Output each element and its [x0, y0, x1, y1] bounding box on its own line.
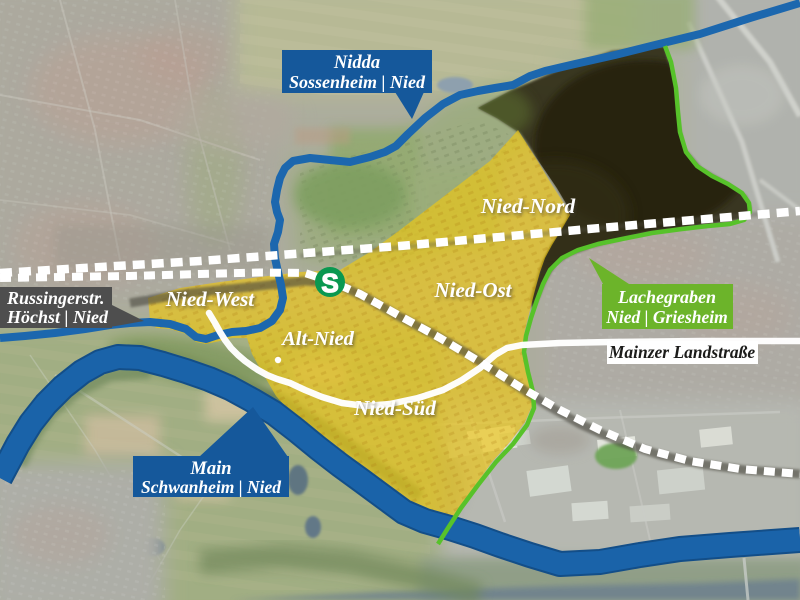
- svg-text:Alt-Nied: Alt-Nied: [280, 328, 354, 350]
- svg-text:Lachegraben: Lachegraben: [617, 287, 716, 307]
- svg-text:Nied-Nord: Nied-Nord: [480, 194, 577, 218]
- svg-text:Nied-Ost: Nied-Ost: [434, 278, 513, 302]
- svg-text:Mainzer Landstraße: Mainzer Landstraße: [608, 342, 756, 362]
- svg-text:Nied-Süd: Nied-Süd: [353, 396, 436, 420]
- svg-text:S: S: [321, 268, 338, 298]
- svg-text:Main: Main: [189, 459, 231, 479]
- svg-text:Höchst | Nied: Höchst | Nied: [6, 307, 109, 327]
- svg-text:Nied | Griesheim: Nied | Griesheim: [605, 307, 727, 327]
- svg-text:Sossenheim | Nied: Sossenheim | Nied: [289, 72, 426, 92]
- svg-text:Nied-West: Nied-West: [165, 287, 255, 311]
- svg-text:Schwanheim | Nied: Schwanheim | Nied: [141, 477, 281, 497]
- svg-text:Russingerstr.: Russingerstr.: [6, 288, 105, 308]
- svg-text:Nidda: Nidda: [333, 53, 380, 73]
